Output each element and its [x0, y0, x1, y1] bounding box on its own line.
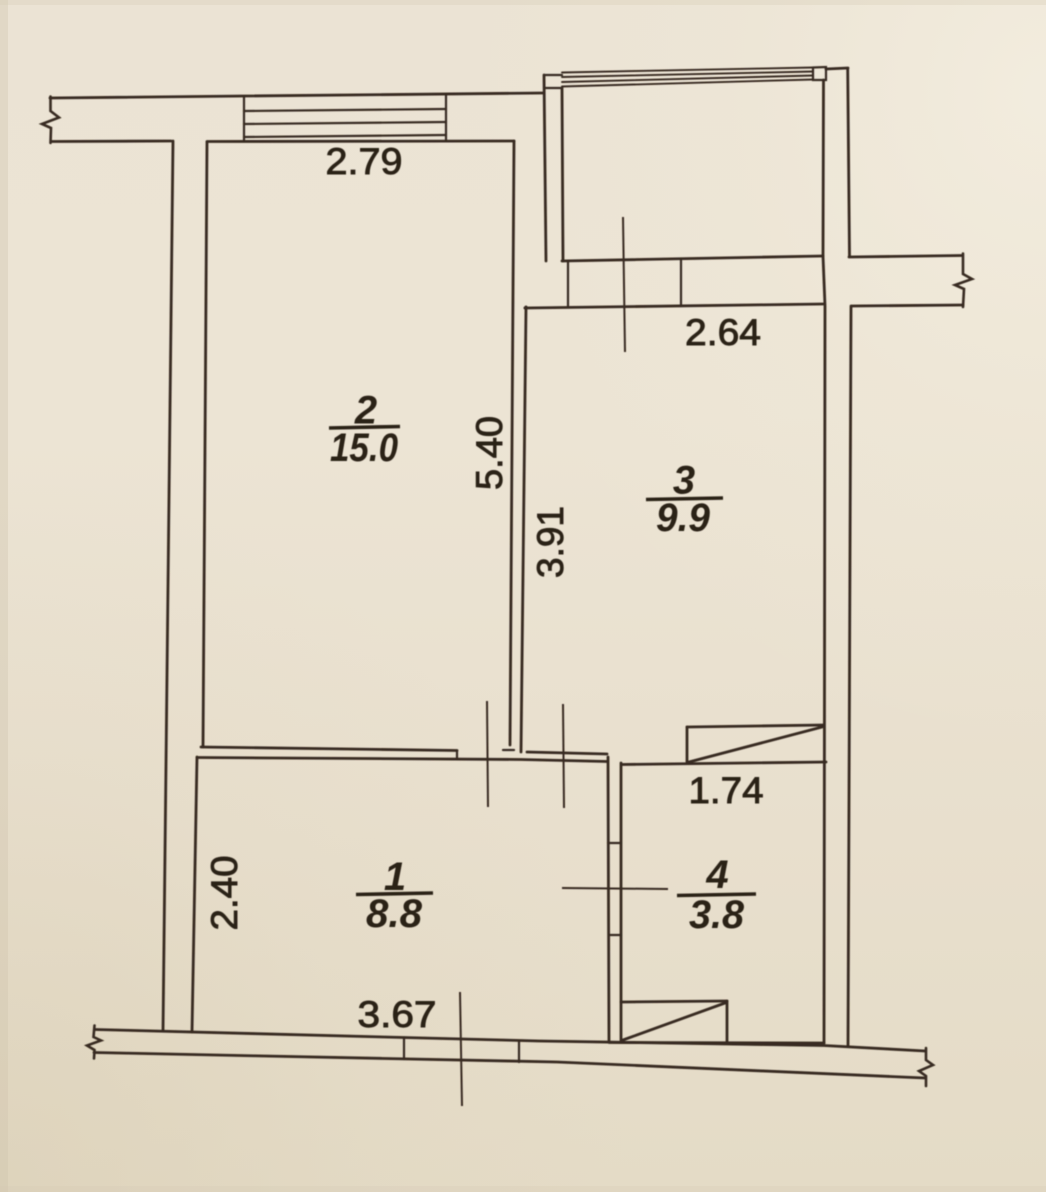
svg-text:9.9: 9.9	[656, 496, 711, 540]
svg-text:3.91: 3.91	[530, 506, 571, 578]
svg-text:5.40: 5.40	[469, 416, 510, 490]
svg-text:2.64: 2.64	[685, 312, 761, 353]
svg-text:1.74: 1.74	[689, 770, 764, 811]
svg-text:2.40: 2.40	[204, 856, 245, 931]
svg-text:3.8: 3.8	[689, 893, 745, 937]
svg-text:4: 4	[705, 853, 728, 897]
svg-text:15.0: 15.0	[330, 426, 398, 470]
svg-text:2.79: 2.79	[326, 141, 403, 182]
svg-text:8.8: 8.8	[366, 892, 423, 936]
svg-text:3.67: 3.67	[358, 994, 437, 1035]
